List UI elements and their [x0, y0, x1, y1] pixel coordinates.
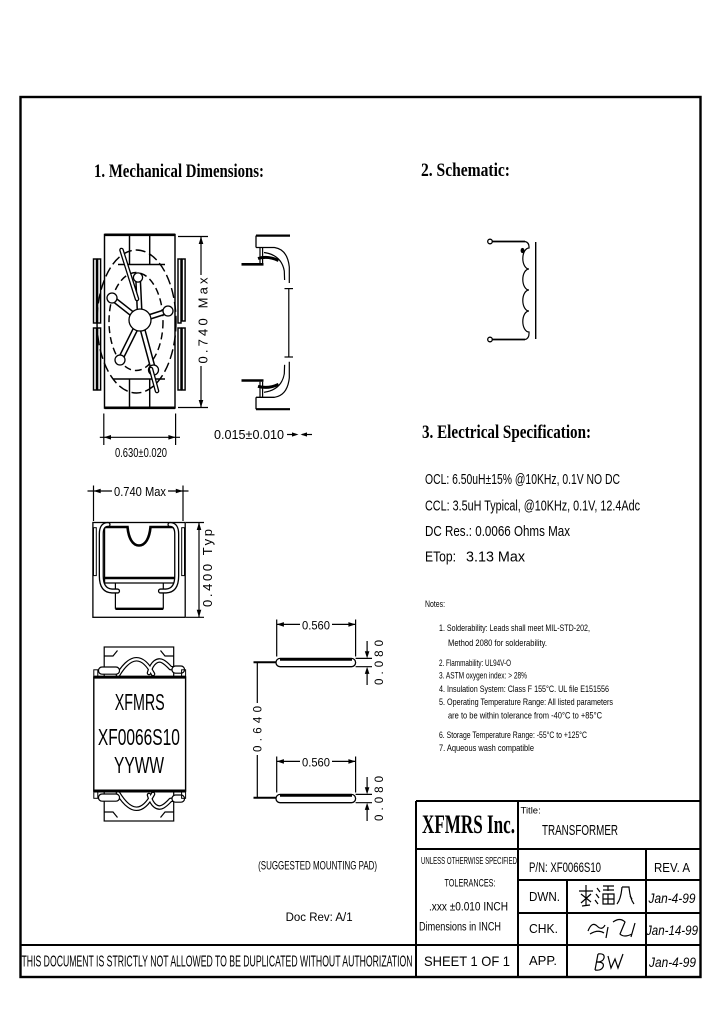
svg-text:Jan-4-99: Jan-4-99 [648, 955, 696, 970]
svg-text:Doc Rev: A/1: Doc Rev: A/1 [286, 912, 353, 924]
svg-text:APP.: APP. [529, 954, 557, 968]
svg-text:P/N: XF0066S10: P/N: XF0066S10 [529, 859, 601, 875]
svg-text:0.740 Max: 0.740 Max [114, 484, 166, 499]
svg-text:Method 2080 for solderability.: Method 2080 for solderability. [448, 638, 547, 649]
svg-text:Title:: Title: [521, 806, 541, 817]
svg-text:ETop:: ETop: [425, 549, 456, 566]
svg-text:0.740 Max: 0.740 Max [196, 277, 211, 364]
svg-text:2. Flammability: UL94V-O: 2. Flammability: UL94V-O [439, 658, 511, 669]
svg-text:0.015±0.010: 0.015±0.010 [214, 427, 284, 442]
svg-text:.xxx ±0.010 INCH: .xxx ±0.010 INCH [429, 902, 508, 914]
svg-text:TOLERANCES:: TOLERANCES: [445, 878, 496, 890]
svg-text:0.400 Typ: 0.400 Typ [200, 529, 215, 607]
svg-text:DWN.: DWN. [529, 890, 560, 904]
svg-text:XFMRS: XFMRS [115, 689, 165, 715]
svg-text:REV. A: REV. A [654, 860, 690, 875]
svg-text:Notes:: Notes: [425, 599, 445, 610]
svg-text:Jan-4-99: Jan-4-99 [648, 891, 696, 906]
svg-text:XFMRS Inc.: XFMRS Inc. [422, 810, 515, 839]
svg-text:Dimensions in INCH: Dimensions in INCH [419, 922, 501, 934]
svg-text:0.560: 0.560 [302, 756, 330, 770]
svg-text:7. Aqueous wash compatible: 7. Aqueous wash compatible [439, 743, 534, 754]
svg-text:4. Insulation System: Class F: 4. Insulation System: Class F 155°C. UL … [439, 684, 609, 695]
svg-text:3. ASTM oxygen index: > 28%: 3. ASTM oxygen index: > 28% [439, 671, 527, 682]
svg-text:SHEET 1 OF 1: SHEET 1 OF 1 [424, 953, 510, 969]
svg-text:OCL: 6.50uH±15% @10KHz, 0.1V N: OCL: 6.50uH±15% @10KHz, 0.1V NO DC [425, 471, 620, 488]
svg-text:XF0066S10: XF0066S10 [98, 724, 180, 750]
svg-text:6. Storage Temperature Range:: 6. Storage Temperature Range: -55°C to +… [439, 730, 587, 741]
svg-text:1. Mechanical Dimensions:: 1. Mechanical Dimensions: [94, 161, 264, 182]
svg-text:TRANSFORMER: TRANSFORMER [542, 823, 618, 839]
svg-text:2. Schematic:: 2. Schematic: [421, 160, 510, 181]
svg-text:YYWW: YYWW [114, 752, 164, 778]
svg-text:1. Solderability: Leads shall: 1. Solderability: Leads shall meet MIL-S… [439, 623, 590, 634]
svg-text:5. Operating Temperature Range: 5. Operating Temperature Range: All list… [439, 697, 613, 708]
svg-text:0.630±0.020: 0.630±0.020 [115, 445, 167, 460]
svg-text:0.560: 0.560 [302, 619, 330, 633]
svg-text:3. Electrical Specification:: 3. Electrical Specification: [422, 422, 591, 443]
svg-text:(SUGGESTED MOUNTING PAD): (SUGGESTED MOUNTING PAD) [258, 859, 377, 873]
svg-text:3.13 Max: 3.13 Max [466, 549, 525, 566]
svg-text:CCL: 3.5uH Typical, @10KHz, 0.: CCL: 3.5uH Typical, @10KHz, 0.1V, 12.4Ad… [425, 498, 640, 515]
svg-text:THIS DOCUMENT IS STRICTLY NOT: THIS DOCUMENT IS STRICTLY NOT ALLOWED TO… [22, 954, 413, 971]
svg-text:Jan-14-99: Jan-14-99 [645, 923, 698, 938]
svg-text:UNLESS OTHERWISE SPECIFIED: UNLESS OTHERWISE SPECIFIED [421, 855, 517, 867]
svg-text:DC Res.: 0.0066 Ohms Max: DC Res.: 0.0066 Ohms Max [425, 523, 570, 540]
svg-text:CHK.: CHK. [529, 922, 558, 936]
svg-text:are to be within tolerance fro: are to be within tolerance from -40°C to… [448, 711, 602, 722]
